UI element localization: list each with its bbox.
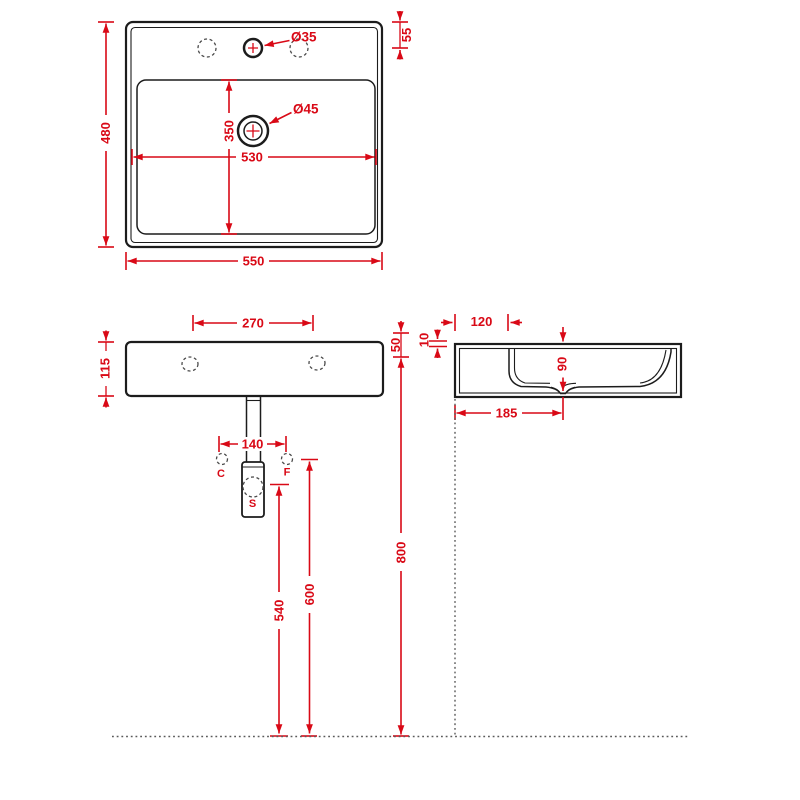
- trap-outlet-hidden: [243, 477, 263, 497]
- wall-hole-f: [282, 454, 293, 465]
- dim-rim-thickness-10: 10: [417, 330, 448, 359]
- dim-tap-setback-55: 55: [392, 11, 414, 60]
- dim-inner-depth-90: 90: [555, 327, 570, 391]
- wall-hole-f-label: F: [284, 467, 291, 479]
- dim-label: 530: [241, 150, 263, 165]
- dim-body-height-115: 115: [98, 331, 115, 408]
- dim-label: 185: [496, 406, 518, 421]
- callout-label: Ø35: [291, 30, 317, 45]
- dim-label: 140: [242, 437, 264, 452]
- dim-label: 55: [399, 28, 414, 42]
- basin-rim-offset-line: [131, 28, 378, 243]
- front-view: C F S 270 115 140: [98, 315, 384, 736]
- dim-label: 480: [98, 122, 113, 144]
- dim-install-height-800: 800: [393, 359, 409, 737]
- trap-label: S: [249, 498, 256, 510]
- dim-label: 550: [243, 254, 265, 269]
- basin-cavity-offset-line: [515, 349, 667, 388]
- technical-drawing-page: 480 550 530 350: [0, 0, 800, 800]
- dim-wall-holes-height-600: 600: [301, 460, 318, 737]
- leader-line: [270, 113, 292, 124]
- dim-label: 120: [471, 314, 493, 329]
- basin-cavity-profile: [509, 349, 671, 394]
- tap-hole-hidden-right: [309, 356, 325, 370]
- dim-label: 600: [302, 584, 317, 606]
- leader-line: [265, 41, 290, 46]
- dim-overall-depth-480: 480: [98, 22, 114, 247]
- callout-drain-diameter: Ø45: [270, 102, 320, 124]
- drain-center-cross: [247, 125, 260, 138]
- body-outline: [126, 342, 383, 396]
- dim-wall-holes-140: 140: [219, 436, 286, 452]
- dim-label: 800: [394, 542, 409, 564]
- tap-hole-hidden-left: [182, 357, 198, 371]
- dim-label: 50: [388, 338, 403, 352]
- washbasin-technical-drawing: 480 550 530 350: [0, 0, 800, 800]
- side-section-view: 120 10 50 800 90: [112, 314, 690, 737]
- dim-label: 540: [272, 600, 287, 622]
- tap-hole-option-left: [198, 39, 216, 57]
- top-view: 480 550 530 350: [98, 11, 414, 270]
- dim-drain-setback-185: 185: [455, 397, 563, 421]
- dim-basin-width-530: 530: [132, 149, 376, 165]
- callout-label: Ø45: [293, 102, 319, 117]
- tap-hole-center-cross: [248, 43, 258, 53]
- dim-tap-spacing-270: 270: [193, 315, 313, 331]
- dim-trap-height-540: 540: [270, 485, 289, 737]
- dim-label: 115: [98, 358, 113, 379]
- wall-hole-c-label: C: [217, 468, 225, 480]
- dim-deck-depth-120: 120: [441, 314, 522, 331]
- callout-tap-hole-diameter: Ø35: [265, 30, 318, 46]
- dim-overall-width-550: 550: [126, 252, 382, 270]
- dim-label: 270: [242, 316, 264, 331]
- dim-label: 350: [222, 120, 237, 142]
- dim-label: 10: [417, 333, 432, 347]
- wall-hole-c: [217, 454, 228, 465]
- dim-label: 90: [555, 357, 570, 371]
- dim-front-drop-50: 50: [388, 321, 409, 357]
